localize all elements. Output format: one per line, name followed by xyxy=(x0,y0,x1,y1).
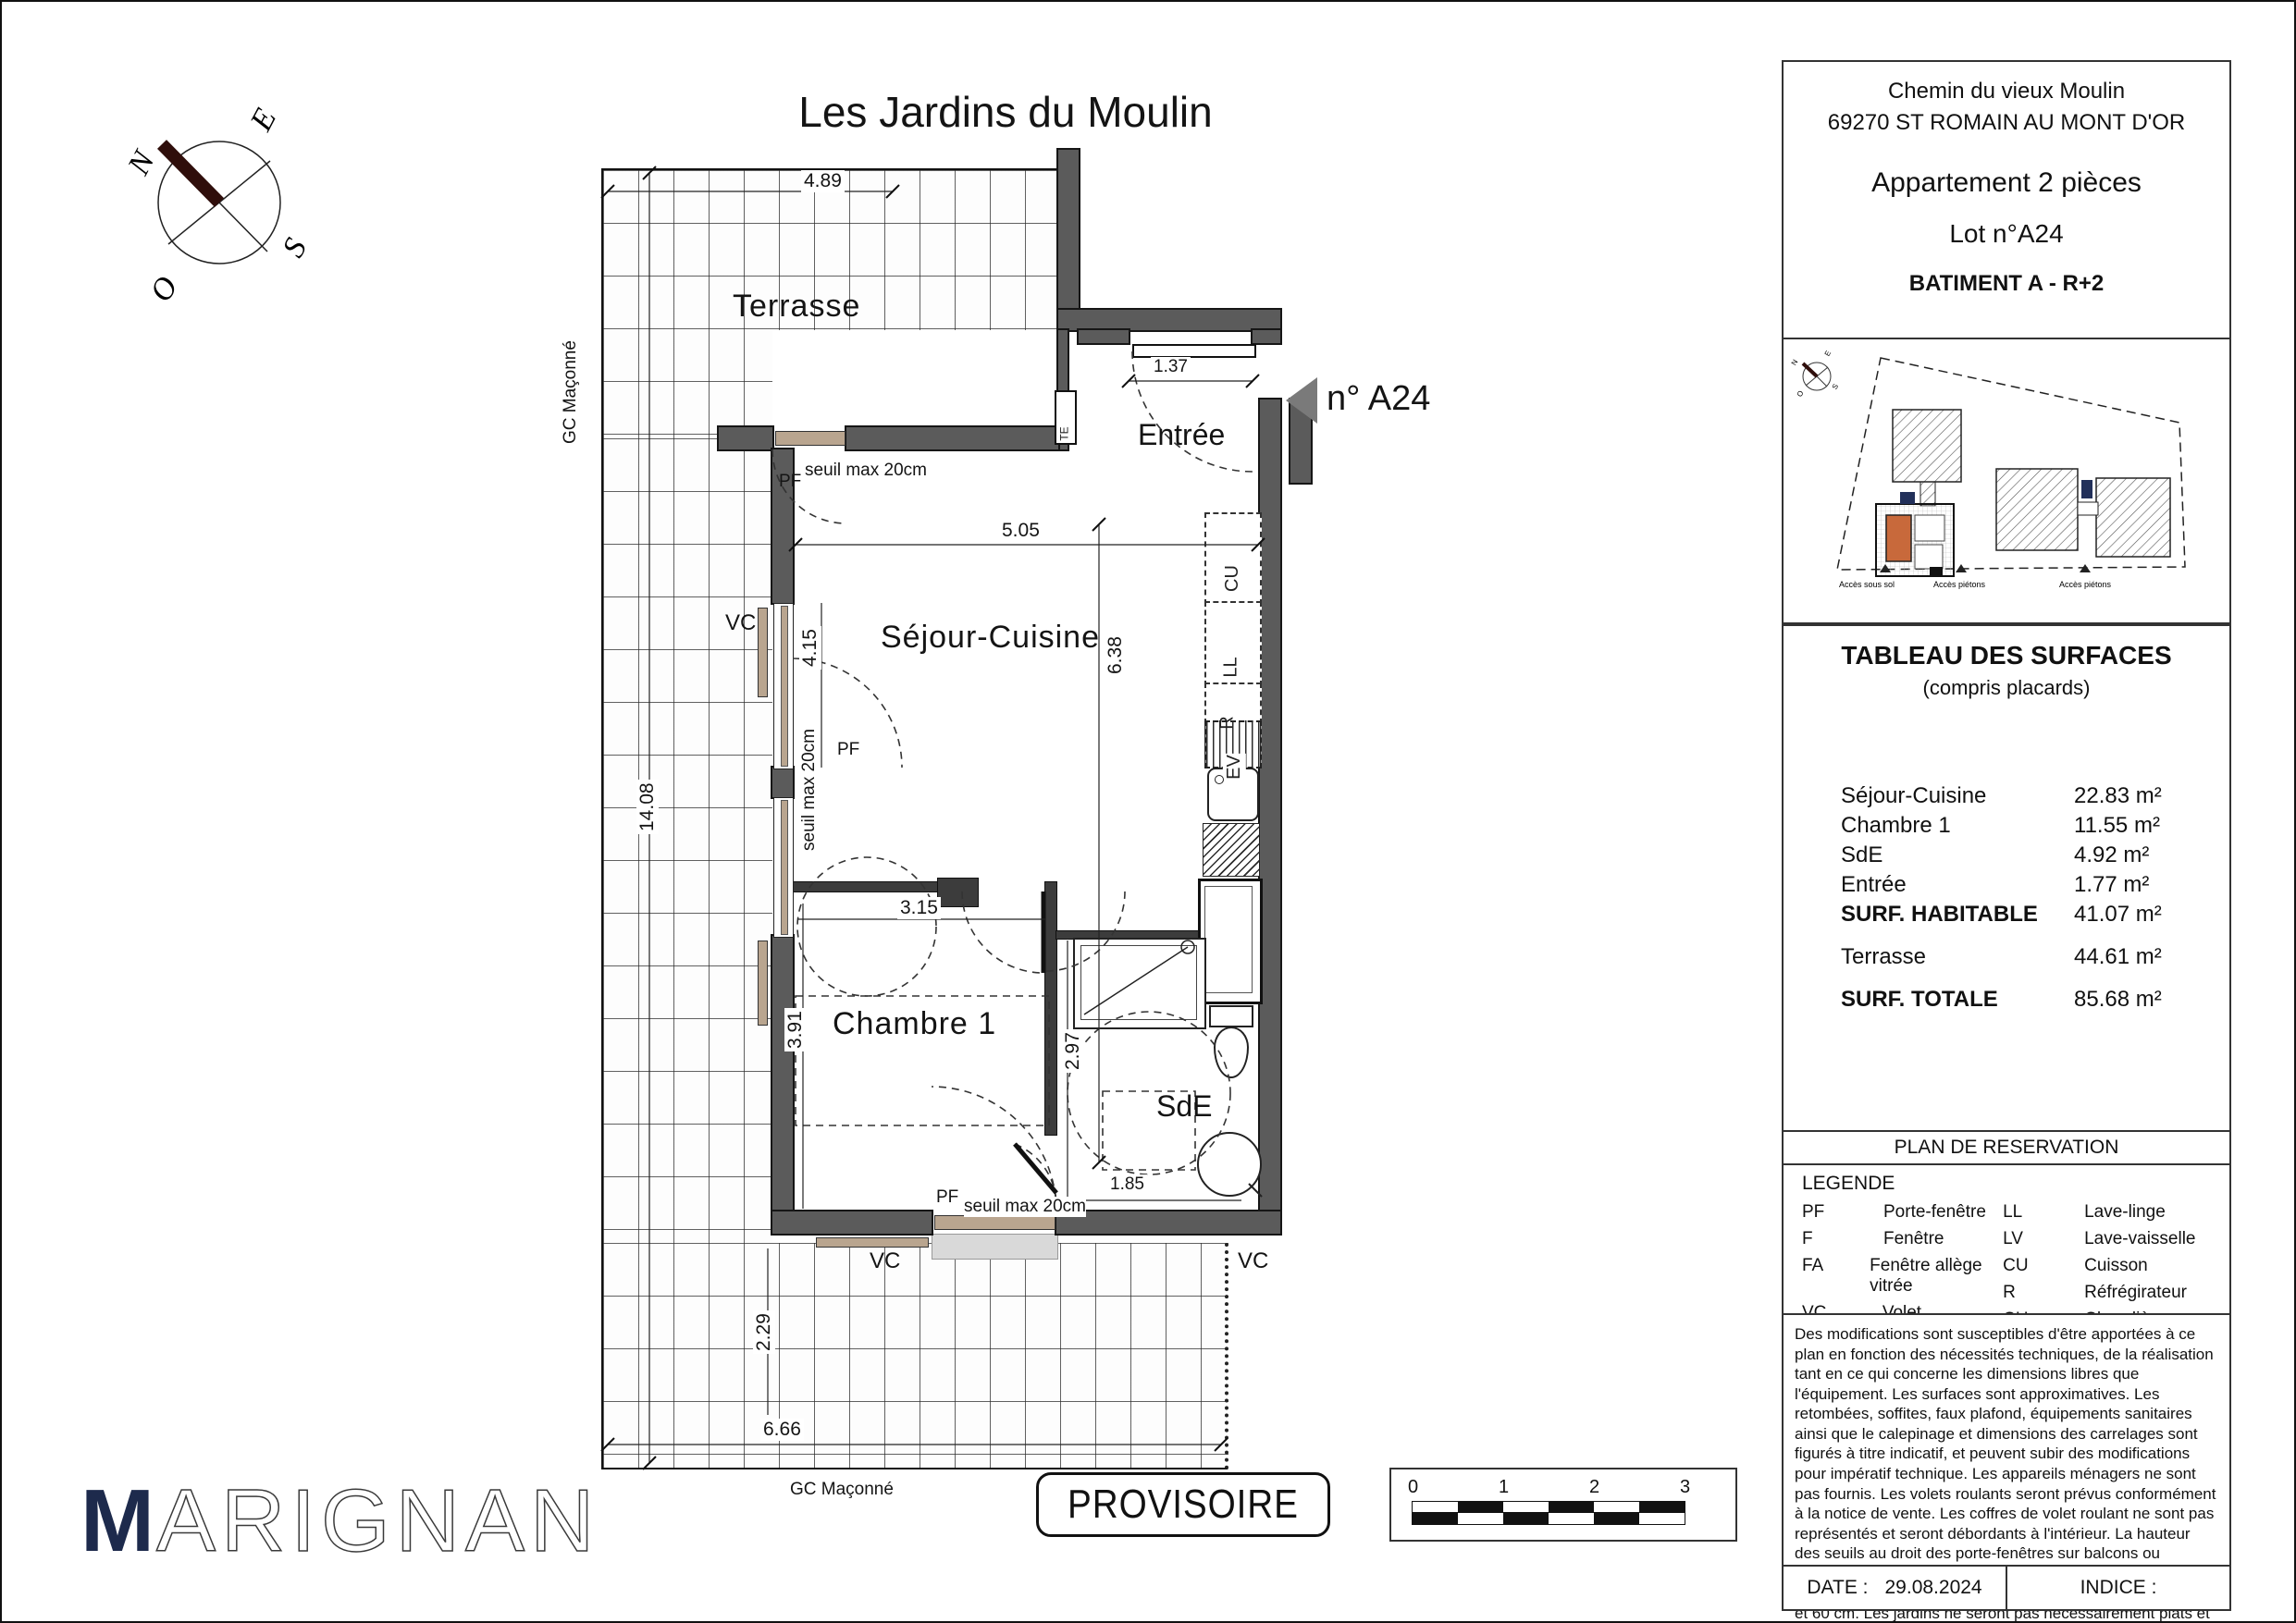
highlighted-unit xyxy=(1886,515,1911,561)
partition xyxy=(793,882,938,891)
dim-sejour-h: 6.38 xyxy=(1105,633,1127,677)
legend-item: CUCuisson xyxy=(2003,1256,2229,1276)
surface-row: Terrasse44.61 m² xyxy=(1784,942,2229,972)
pf-label: PF xyxy=(936,1187,958,1208)
gc-label-bottom: GC Maçonné xyxy=(790,1480,894,1500)
lot-number: Lot n°A24 xyxy=(1784,219,2229,249)
pf-label: PF xyxy=(837,740,859,760)
wall xyxy=(719,427,772,449)
legend-panel: LEGENDE PFPorte-fenêtre FFenêtre FAFenêt… xyxy=(1782,1163,2231,1315)
unit-arrow-icon xyxy=(1286,377,1317,424)
wall xyxy=(772,768,793,797)
wall xyxy=(846,427,1058,449)
room-label-sejour: Séjour-Cuisine xyxy=(881,620,1100,656)
marignan-logo: MARIGNAN xyxy=(80,1470,599,1572)
site-plan-map: N E S O Accès sous sol xyxy=(1784,339,2229,622)
svg-text:S: S xyxy=(1831,383,1840,391)
dim-terrace-left: 14.08 xyxy=(636,780,659,834)
wall xyxy=(1056,1211,1280,1234)
seuil-label-top: seuil max 20cm xyxy=(805,461,927,481)
unit-number: n° A24 xyxy=(1327,379,1430,419)
legend-title: LEGENDE xyxy=(1802,1173,2229,1195)
surface-row: Chambre 111.55 m² xyxy=(1784,811,2229,841)
wall xyxy=(1079,330,1129,343)
apartment-type: Appartement 2 pièces xyxy=(1784,167,2229,199)
scale-1: 1 xyxy=(1499,1477,1509,1498)
date-label: DATE : xyxy=(1807,1577,1868,1599)
building-block xyxy=(2096,478,2170,557)
surface-row-habitable: SURF. HABITABLE41.07 m² xyxy=(1784,900,2229,929)
vc-shutter xyxy=(816,1237,929,1248)
site-compass-icon: N E S O xyxy=(1790,350,1840,399)
vc-label: VC xyxy=(725,610,756,636)
dim-entry-door: 1.37 xyxy=(1151,357,1191,377)
access-label-2: Accès piétons xyxy=(1933,580,1986,589)
provisoire-stamp: PROVISOIRE xyxy=(1036,1472,1330,1537)
faucet-icon xyxy=(1215,775,1224,784)
legend-item: PFPorte-fenêtre xyxy=(1802,1202,2003,1223)
washbasin xyxy=(1197,1132,1262,1197)
partition xyxy=(1045,882,1056,1135)
scale-3: 3 xyxy=(1680,1477,1690,1498)
pf-sill xyxy=(775,431,846,446)
washer-label: LL xyxy=(1221,657,1242,677)
date-cell: DATE : 29.08.2024 xyxy=(1784,1567,2007,1609)
date-value: 29.08.2024 xyxy=(1885,1577,1982,1599)
seuil-label-left: seuil max 20cm xyxy=(799,729,820,851)
access-label-1: Accès sous sol xyxy=(1839,580,1895,589)
vc-label: VC xyxy=(870,1248,900,1274)
dim-sde-w: 1.85 xyxy=(1107,1174,1147,1195)
dim-terrace-bot-w: 6.66 xyxy=(760,1419,804,1441)
room-label-terrasse: Terrasse xyxy=(733,289,860,325)
surfaces-panel: TABLEAU DES SURFACES (compris placards) … xyxy=(1782,624,2231,1132)
svg-text:N: N xyxy=(1790,358,1800,367)
vc-shutter xyxy=(758,941,768,1026)
room-label-entree: Entrée xyxy=(1138,418,1225,452)
svg-text:O: O xyxy=(1796,389,1806,399)
stairs-icon xyxy=(1900,492,1915,504)
scale-row-2 xyxy=(1412,1512,1685,1525)
disclaimer-panel: Des modifications sont susceptibles d'êt… xyxy=(1782,1313,2231,1567)
surfaces-subtitle: (compris placards) xyxy=(1784,676,2229,700)
dim-terrace-bot-h: 2.29 xyxy=(753,1310,775,1354)
stairs-icon xyxy=(2081,480,2092,498)
wc-tank xyxy=(1209,1005,1253,1027)
vc-label: VC xyxy=(1238,1248,1268,1274)
building-floor: BATIMENT A - R+2 xyxy=(1784,271,2229,297)
legend-item: FFenêtre xyxy=(1802,1229,2003,1249)
pf-label: PF xyxy=(779,472,801,492)
room-label-chambre: Chambre 1 xyxy=(833,1006,996,1042)
surface-row: SdE4.92 m² xyxy=(1784,841,2229,870)
compass-south: S xyxy=(277,233,315,263)
legend-item: FAFenêtre allège vitrée xyxy=(1802,1256,2003,1297)
window-pf-left xyxy=(773,603,794,769)
fridge-label: R xyxy=(1217,716,1239,729)
pf-sill xyxy=(934,1215,1055,1230)
wall xyxy=(772,936,793,1213)
legend-item: RRéfrégirateur xyxy=(2003,1283,2229,1303)
reservation-title: PLAN DE RESERVATION xyxy=(1895,1137,2119,1159)
logo-rest: ARIGNAN xyxy=(156,1471,599,1570)
indice-cell: INDICE : xyxy=(2007,1567,2229,1609)
wall xyxy=(772,1211,932,1234)
surface-row-totale: SURF. TOTALE85.68 m² xyxy=(1784,985,2229,1014)
dim-sejour-left: 4.15 xyxy=(799,626,821,670)
terrace-bottom-tiles xyxy=(601,1243,1228,1469)
gc-label-left: GC Maçonné xyxy=(561,340,581,444)
surfaces-title: TABLEAU DES SURFACES xyxy=(1784,641,2229,670)
dim-terrace-top: 4.89 xyxy=(801,170,845,192)
indice-label: INDICE : xyxy=(2080,1577,2157,1599)
building-block xyxy=(1893,410,1961,482)
te-label: TE xyxy=(1058,426,1071,440)
bathroom-cabinet-inner xyxy=(1204,886,1253,993)
terrace-left-tiles xyxy=(601,438,774,1243)
shower-inner xyxy=(1080,945,1197,1020)
partition-pier xyxy=(938,879,978,906)
pf-threshold xyxy=(932,1234,1058,1260)
entry-door-leaf xyxy=(1132,344,1256,358)
reservation-bar: PLAN DE RESERVATION xyxy=(1782,1130,2231,1165)
surface-row: Entrée1.77 m² xyxy=(1784,870,2229,900)
stamp-text: PROVISOIRE xyxy=(1068,1482,1299,1528)
wall xyxy=(1260,400,1280,1213)
dim-sejour-w: 5.05 xyxy=(999,520,1043,542)
compass-needle xyxy=(162,144,219,203)
building-block xyxy=(1996,469,2078,550)
address-line2: 69270 ST ROMAIN AU MONT D'OR xyxy=(1784,110,2229,136)
scale-0: 0 xyxy=(1408,1477,1418,1498)
page-title: Les Jardins du Moulin xyxy=(760,87,1251,137)
scale-bar: 0 1 2 3 xyxy=(1389,1468,1737,1542)
info-panel: Chemin du vieux Moulin 69270 ST ROMAIN A… xyxy=(1782,60,2231,339)
compass-icon: N E S O xyxy=(104,90,344,321)
access-label-3: Accès piétons xyxy=(2059,580,2112,589)
legend-item: LVLave-vaisselle xyxy=(2003,1229,2229,1249)
svg-text:E: E xyxy=(1823,350,1833,358)
vc-shutter xyxy=(758,608,768,697)
surface-row: Séjour-Cuisine22.83 m² xyxy=(1784,781,2229,811)
sink-label: EV xyxy=(1223,754,1246,781)
soffit-hatch xyxy=(1203,823,1260,877)
window-f-left xyxy=(773,797,794,938)
dim-sde-h: 2.97 xyxy=(1062,1029,1084,1073)
wall xyxy=(1253,330,1280,343)
wall xyxy=(1058,150,1079,310)
dim-chambre-w: 3.15 xyxy=(897,897,941,919)
plan-sheet: Les Jardins du Moulin N E S O xyxy=(0,0,2296,1623)
compass-north: N xyxy=(121,144,163,181)
legend-item: LLLave-linge xyxy=(2003,1202,2229,1223)
wall xyxy=(1058,310,1280,330)
seuil-label-bottom: seuil max 20cm xyxy=(964,1197,1086,1217)
logo-m: M xyxy=(80,1471,156,1570)
room-label-sde: SdE xyxy=(1156,1089,1212,1124)
scale-2: 2 xyxy=(1589,1477,1599,1498)
address-line1: Chemin du vieux Moulin xyxy=(1784,79,2229,105)
compass-east: E xyxy=(243,103,283,137)
compass-west: O xyxy=(144,271,185,307)
cooktop-label: CU xyxy=(1222,565,1243,592)
site-plan-panel: N E S O Accès sous sol xyxy=(1782,338,2231,624)
footer-bar: DATE : 29.08.2024 INDICE : xyxy=(1782,1565,2231,1611)
dim-chambre-h: 3.91 xyxy=(784,1008,807,1051)
